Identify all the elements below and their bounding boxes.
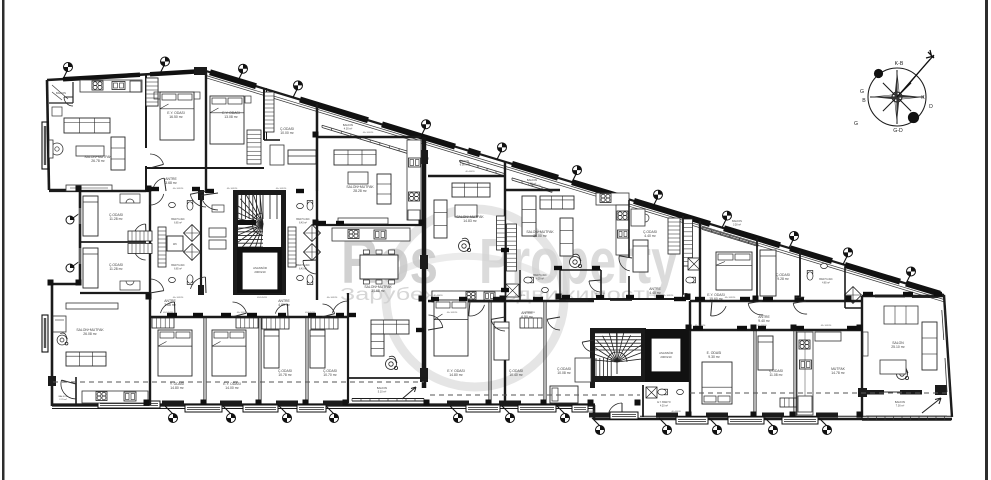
svg-text:K: K (921, 95, 925, 101)
svg-text:26.08 m²: 26.08 m² (83, 332, 97, 336)
svg-text:3.28 m²: 3.28 m² (733, 223, 741, 226)
svg-text:4.29 m²: 4.29 m² (536, 277, 544, 280)
svg-text:BALKON: BALKON (56, 92, 66, 95)
svg-text:2.70 m²: 2.70 m² (59, 398, 67, 401)
svg-text:5.10 m²: 5.10 m² (378, 391, 387, 394)
svg-text:40+80/20: 40+80/20 (433, 295, 443, 297)
svg-text:40+80/20: 40+80/20 (531, 185, 541, 187)
svg-text:6.65 m²: 6.65 m² (174, 221, 182, 224)
svg-text:40+105/20: 40+105/20 (327, 297, 338, 299)
svg-text:14.00 m²: 14.00 m² (225, 386, 239, 390)
svg-text:200X210: 200X210 (660, 355, 672, 359)
svg-text:B: B (862, 98, 866, 104)
svg-text:BALKON: BALKON (343, 124, 353, 127)
svg-text:E.Y. BANYO: E.Y. BANYO (657, 401, 670, 404)
svg-text:40+105/20: 40+105/20 (237, 312, 248, 314)
svg-text:10.70 m²: 10.70 m² (323, 373, 337, 377)
svg-text:11.28 m²: 11.28 m² (109, 217, 123, 221)
svg-text:K-B: K-B (895, 61, 904, 67)
svg-text:26.78 m²: 26.78 m² (91, 159, 105, 163)
svg-text:6.65 m²: 6.65 m² (174, 267, 182, 270)
svg-text:16.50 m²: 16.50 m² (169, 115, 183, 119)
svg-text:11.08 m²: 11.08 m² (769, 373, 783, 377)
svg-text:43-105/20: 43-105/20 (525, 312, 536, 314)
svg-text:4.80 m²: 4.80 m² (822, 281, 830, 284)
svg-text:40+80/09: 40+80/09 (585, 411, 595, 413)
svg-text:14.83 m²: 14.83 m² (463, 219, 477, 223)
svg-text:40+80/20: 40+80/20 (595, 293, 605, 295)
svg-text:14.80 m²: 14.80 m² (449, 373, 463, 377)
svg-text:4.40 m²: 4.40 m² (649, 291, 661, 295)
svg-text:40+105/20: 40+105/20 (276, 188, 287, 190)
svg-text:25.00 m²: 25.00 m² (533, 234, 547, 238)
svg-text:43+105/20: 43+105/20 (695, 325, 706, 327)
svg-text:11.28 m²: 11.28 m² (109, 267, 123, 271)
svg-text:4.20 m²: 4.20 m² (660, 405, 668, 408)
svg-text:43+105/20: 43+105/20 (725, 297, 736, 299)
svg-text:4.40 m²: 4.40 m² (644, 234, 656, 238)
svg-text:6.50 m²: 6.50 m² (521, 315, 533, 319)
svg-text:BALKON: BALKON (459, 160, 469, 163)
svg-text:G: G (860, 89, 864, 95)
svg-text:14.80 m²: 14.80 m² (170, 386, 184, 390)
svg-text:BANYO+WC: BANYO+WC (296, 218, 310, 221)
svg-text:40+80/20: 40+80/20 (465, 171, 475, 173)
svg-text:6.08 m²: 6.08 m² (460, 164, 469, 167)
svg-text:3.68 m²: 3.68 m² (165, 181, 177, 185)
svg-text:BANYO+WC: BANYO+WC (533, 274, 547, 277)
svg-text:6.43 m²: 6.43 m² (299, 221, 307, 224)
svg-text:25.10 m²: 25.10 m² (891, 345, 905, 349)
svg-text:7.00 m²: 7.00 m² (896, 405, 905, 408)
svg-text:200X210: 200X210 (254, 270, 266, 274)
svg-text:WC: WC (173, 243, 177, 246)
svg-text:43+105/20: 43+105/20 (663, 295, 674, 297)
svg-text:BALKON: BALKON (59, 395, 68, 398)
svg-text:40+105/20: 40+105/20 (173, 297, 184, 299)
svg-text:BALKON: BALKON (377, 387, 387, 390)
svg-text:10.00 m²: 10.00 m² (280, 131, 294, 135)
svg-text:43-105/20: 43-105/20 (305, 312, 316, 314)
svg-text:13.08 m²: 13.08 m² (224, 115, 238, 119)
svg-text:14.78 m²: 14.78 m² (831, 371, 845, 375)
svg-text:40+80/20: 40+80/20 (757, 325, 767, 327)
svg-text:4.30 m²: 4.30 m² (344, 128, 353, 131)
svg-text:10.40 m²: 10.40 m² (509, 373, 523, 377)
svg-text:40+105/20: 40+105/20 (173, 188, 184, 190)
svg-text:9.28 m²: 9.28 m² (777, 277, 789, 281)
svg-text:43+105/20: 43+105/20 (515, 295, 526, 297)
svg-text:9.30 m²: 9.30 m² (708, 355, 720, 359)
svg-text:BALKON: BALKON (527, 179, 537, 182)
svg-text:43-105/20: 43-105/20 (257, 297, 268, 299)
svg-text:43+105/20: 43+105/20 (227, 188, 238, 190)
svg-text:G: G (854, 121, 858, 127)
svg-text:10.08 m²: 10.08 m² (557, 371, 571, 375)
svg-text:40+100/20: 40+100/20 (363, 132, 374, 134)
svg-text:BANYO+WC: BANYO+WC (171, 264, 185, 267)
svg-text:30.68 m²: 30.68 m² (371, 289, 385, 293)
svg-text:43-105/20: 43-105/20 (163, 312, 174, 314)
svg-text:BANYO+WC: BANYO+WC (819, 278, 833, 281)
svg-text:BANYO+WC: BANYO+WC (296, 264, 310, 267)
svg-text:40+105/20: 40+105/20 (447, 312, 458, 314)
svg-text:G-D: G-D (893, 128, 903, 134)
svg-text:BALKON: BALKON (895, 401, 905, 404)
svg-text:BANYO+WC: BANYO+WC (171, 218, 185, 221)
svg-text:10.78 m²: 10.78 m² (278, 373, 292, 377)
svg-text:43+105/20: 43+105/20 (821, 325, 832, 327)
svg-text:9.40 m²: 9.40 m² (758, 319, 770, 323)
svg-text:40+80/09: 40+80/09 (671, 411, 681, 413)
svg-text:40+80/20: 40+80/20 (795, 297, 805, 299)
svg-text:D: D (929, 104, 933, 110)
svg-text:28.28 m²: 28.28 m² (353, 189, 367, 193)
